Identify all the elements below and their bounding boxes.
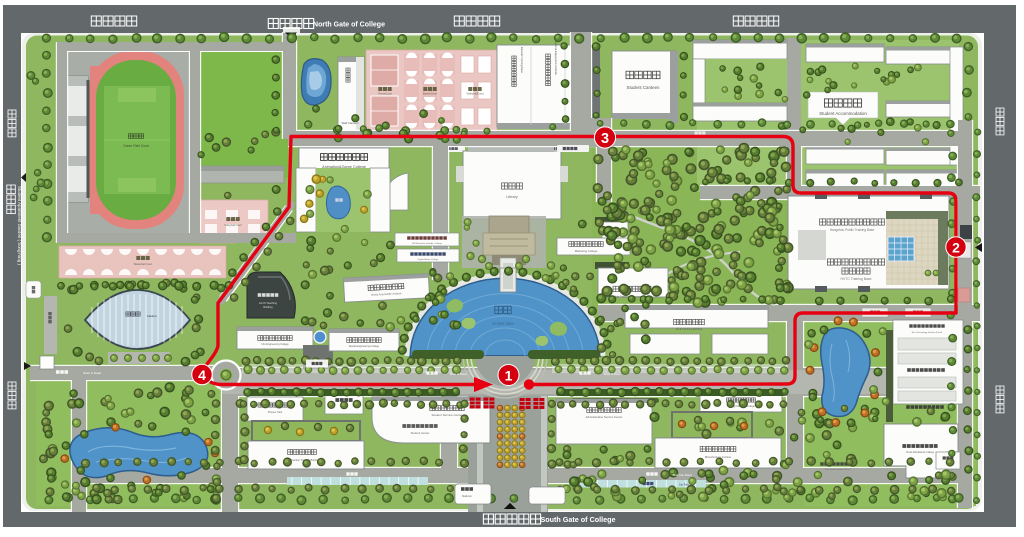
svg-text:Info Engineering College: Info Engineering College <box>261 343 289 346</box>
svg-text:Hangzhou Public Training Base: Hangzhou Public Training Base <box>830 228 875 232</box>
svg-text:3: 3 <box>601 131 609 147</box>
svg-text:Building: Building <box>263 305 273 309</box>
svg-text:Bhai Xue Road: Bhai Xue Road <box>673 473 692 477</box>
svg-text:Shan H Road: Shan H Road <box>450 372 467 376</box>
svg-text:No.8 Teaching Building: No.8 Teaching Building <box>676 327 703 331</box>
svg-text:North Gate of College: North Gate of College <box>313 22 385 29</box>
svg-text:HVTC Training Base: HVTC Training Base <box>841 277 872 281</box>
svg-text:Five metal Institute Zone 1: Five metal Institute Zone 1 <box>825 468 852 471</box>
svg-text:Elevator training base: Elevator training base <box>520 47 524 73</box>
svg-text:1: 1 <box>505 368 513 384</box>
svg-text:Stadium: Stadium <box>147 314 158 318</box>
svg-text:TennisCourt: TennisCourt <box>378 92 392 96</box>
svg-text:Pioneer Park: Pioneer Park <box>268 411 283 414</box>
svg-text:Media Engineering College: Media Engineering College <box>349 345 380 348</box>
svg-text:Smart lake: Smart lake <box>492 321 514 326</box>
svg-text:Administrative Service Center: Administrative Service Center <box>586 415 623 419</box>
svg-text:Student Canteen: Student Canteen <box>627 85 661 90</box>
svg-text:Eco Technology Institute Zone3: Eco Technology Institute Zone3 <box>912 331 943 334</box>
svg-text:VolleyballCourt: VolleyballCourt <box>466 92 484 96</box>
svg-text:4: 4 <box>198 367 206 383</box>
svg-text:Shan H Road: Shan H Road <box>604 372 621 376</box>
svg-text:Marketing College: Marketing College <box>575 249 598 253</box>
svg-text:Digital Media College: Digital Media College <box>418 258 439 261</box>
svg-text:Shan S Road: Shan S Road <box>83 371 101 375</box>
svg-text:Smart Manufacture College: Smart Manufacture College <box>906 451 935 454</box>
svg-text:Student Apartment Garden ( Son: Student Apartment Garden ( SongYang ) <box>17 186 22 266</box>
svg-text:Ann'S Teaching: Ann'S Teaching <box>259 301 277 305</box>
svg-text:BasketCourt: BasketCourt <box>423 92 438 96</box>
svg-text:Volleyball Court: Volleyball Court <box>224 224 242 227</box>
svg-text:Student Center: Student Center <box>411 431 430 435</box>
svg-text:Basketball Court: Basketball Court <box>134 263 153 266</box>
svg-text:Student Service Center: Student Service Center <box>431 413 462 417</box>
svg-text:Green Field Court: Green Field Court <box>123 144 148 148</box>
svg-text:HZ Moonlake Ind.Edu. College: HZ Moonlake Ind.Edu. College <box>412 243 443 245</box>
svg-text:South Gate of College: South Gate of College <box>540 515 615 524</box>
svg-text:Mailroom: Mailroom <box>462 495 472 498</box>
svg-text:2: 2 <box>952 240 960 256</box>
svg-text:Special Equipment Institute: Special Equipment Institute <box>554 41 558 75</box>
svg-text:Student Accommodation: Student Accommodation <box>819 111 867 116</box>
svg-text:Car Park: Car Park <box>679 483 690 487</box>
svg-text:Library: Library <box>506 195 518 199</box>
